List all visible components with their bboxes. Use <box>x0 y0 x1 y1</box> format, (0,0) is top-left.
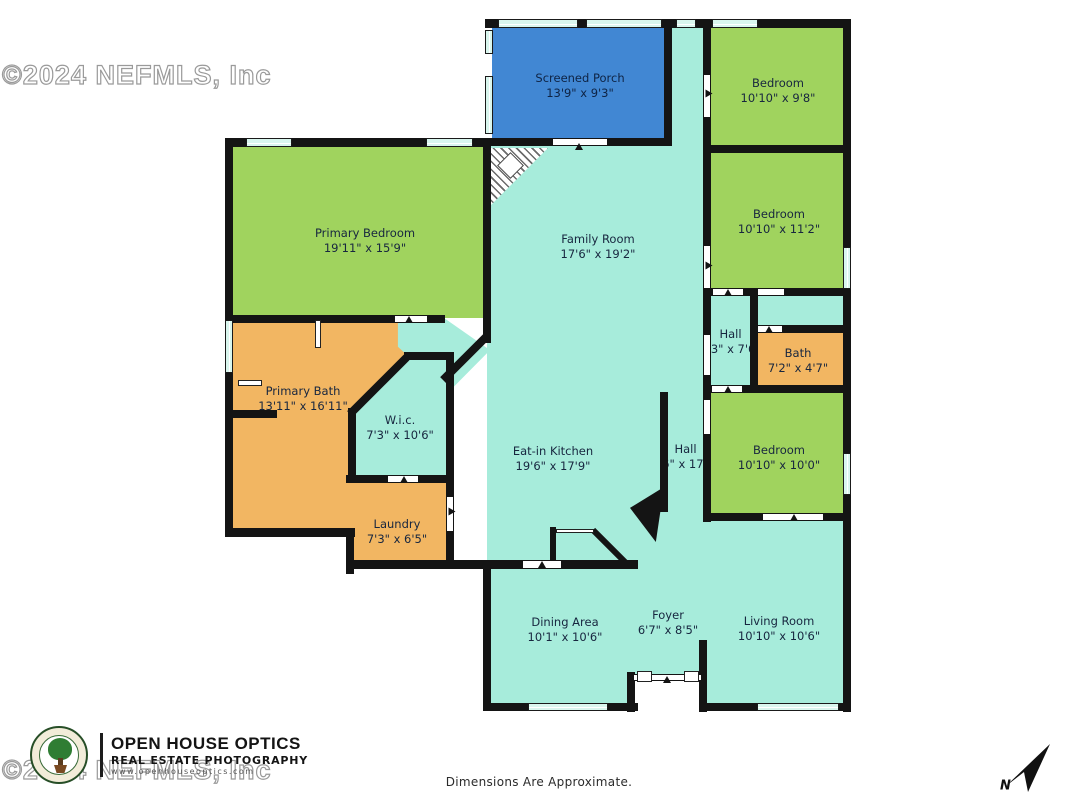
open-house-optics-logo: OPEN HOUSE OPTICS REAL ESTATE PHOTOGRAPH… <box>30 726 308 784</box>
label-primary-bedroom: Primary Bedroom 19'11" x 15'9" <box>315 226 415 256</box>
door-opening <box>758 288 784 296</box>
room-name: Laundry <box>367 517 427 532</box>
entry-recess <box>634 679 701 712</box>
wall <box>843 19 851 712</box>
tree-trunk <box>58 758 63 766</box>
room-name: Hall <box>668 442 703 457</box>
logo-title: OPEN HOUSE OPTICS <box>111 734 308 754</box>
label-living-room: Living Room 10'10" x 10'6" <box>738 614 820 644</box>
wall <box>660 392 668 512</box>
window <box>586 19 662 28</box>
label-wic: W.i.c. 7'3" x 10'6" <box>366 413 434 443</box>
door-leaf <box>315 320 321 348</box>
window <box>757 703 839 711</box>
label-bedroom-lower: Bedroom 10'10" x 10'0" <box>738 443 820 473</box>
label-bath: Bath 7'2" x 4'7" <box>768 346 828 376</box>
room-name: Hall <box>711 327 750 342</box>
label-laundry: Laundry 7'3" x 6'5" <box>367 517 427 547</box>
room-dims: 7'3" x 6'5" <box>367 532 427 546</box>
room-dims: 13'11" x 16'11" <box>258 399 348 413</box>
closet-shelf <box>556 529 594 533</box>
room-name: Living Room <box>738 614 820 629</box>
wall <box>446 352 454 567</box>
wall <box>225 528 355 537</box>
window <box>485 76 493 134</box>
dimensions-note: Dimensions Are Approximate. <box>446 775 633 789</box>
window <box>246 138 292 147</box>
room-dims: 19'6" x 17'9" <box>516 459 591 473</box>
room-dims: 6'7" x 8'5" <box>638 623 698 637</box>
room-name: Bath <box>768 346 828 361</box>
label-eat-in-kitchen: Eat-in Kitchen 19'6" x 17'9" <box>513 444 593 474</box>
window <box>528 703 608 711</box>
floor-plan: Screened Porch 13'9" x 9'3" Bedroom 10'1… <box>0 0 1080 810</box>
label-bedroom-middle: Bedroom 10'10" x 11'2" <box>738 207 820 237</box>
window <box>225 320 233 373</box>
label-dining-area: Dining Area 10'1" x 10'6" <box>528 615 603 645</box>
room-dims: 19'11" x 15'9" <box>324 241 406 255</box>
wall <box>346 560 456 569</box>
label-primary-bath: Primary Bath 13'11" x 16'11" <box>258 384 348 414</box>
label-screened-porch: Screened Porch 13'9" x 9'3" <box>535 71 624 101</box>
room-dims: 10'10" x 10'0" <box>738 458 820 472</box>
window <box>676 19 696 28</box>
tree-icon <box>48 738 72 760</box>
room-dims: 10'1" x 10'6" <box>528 630 603 644</box>
door-opening <box>703 335 711 375</box>
room-dims: 10'10" x 9'8" <box>741 91 816 105</box>
room-dims: 3'3" x 7'6" <box>711 342 750 356</box>
label-family-room: Family Room 17'6" x 19'2" <box>561 232 636 262</box>
window <box>426 138 473 147</box>
room-name: W.i.c. <box>366 413 434 428</box>
room-name: Foyer <box>638 608 698 623</box>
room-dims: 3'6" x 17'9" <box>668 457 703 471</box>
room-name: Bedroom <box>741 76 816 91</box>
room-dims: 13'9" x 9'3" <box>546 86 614 100</box>
sidelight <box>684 671 699 682</box>
wall <box>483 560 491 711</box>
wall <box>348 408 356 483</box>
room-name: Primary Bath <box>258 384 348 399</box>
wall <box>483 138 491 343</box>
room-name: Screened Porch <box>535 71 624 86</box>
window <box>498 19 578 28</box>
sidelight <box>637 671 652 682</box>
room-dims: 7'3" x 10'6" <box>366 428 434 442</box>
room-name: Bedroom <box>738 443 820 458</box>
label-hall-right: Hall 3'3" x 7'6" <box>711 296 750 388</box>
room-dims: 7'2" x 4'7" <box>768 361 828 375</box>
wall <box>750 288 758 392</box>
window <box>712 19 758 28</box>
room-name: Primary Bedroom <box>315 226 415 241</box>
room-name: Eat-in Kitchen <box>513 444 593 459</box>
room-primary-bath-fill2 <box>232 318 352 530</box>
label-hall-center: Hall 3'6" x 17'9" <box>668 398 703 516</box>
label-bedroom-top: Bedroom 10'10" x 9'8" <box>741 76 816 106</box>
watermark-top: ©2024 NEFMLS, Inc <box>2 60 271 91</box>
logo-url: www.openhouseoptics.com <box>111 767 308 776</box>
room-dims: 17'6" x 19'2" <box>561 247 636 261</box>
room-dims: 10'10" x 10'6" <box>738 629 820 643</box>
window <box>843 453 851 495</box>
north-letter: N <box>1000 779 1011 794</box>
room-dims: 10'10" x 11'2" <box>738 222 820 236</box>
logo-divider <box>100 733 103 777</box>
area-living <box>705 513 850 710</box>
room-name: Family Room <box>561 232 636 247</box>
window <box>485 30 493 54</box>
room-name: Bedroom <box>738 207 820 222</box>
window <box>843 247 851 289</box>
logo-badge-icon <box>30 726 88 784</box>
label-foyer: Foyer 6'7" x 8'5" <box>638 608 698 638</box>
logo-subtitle: REAL ESTATE PHOTOGRAPHY <box>111 754 308 767</box>
wall <box>703 145 851 153</box>
room-name: Dining Area <box>528 615 603 630</box>
door-opening <box>703 400 711 434</box>
wall <box>664 19 672 146</box>
